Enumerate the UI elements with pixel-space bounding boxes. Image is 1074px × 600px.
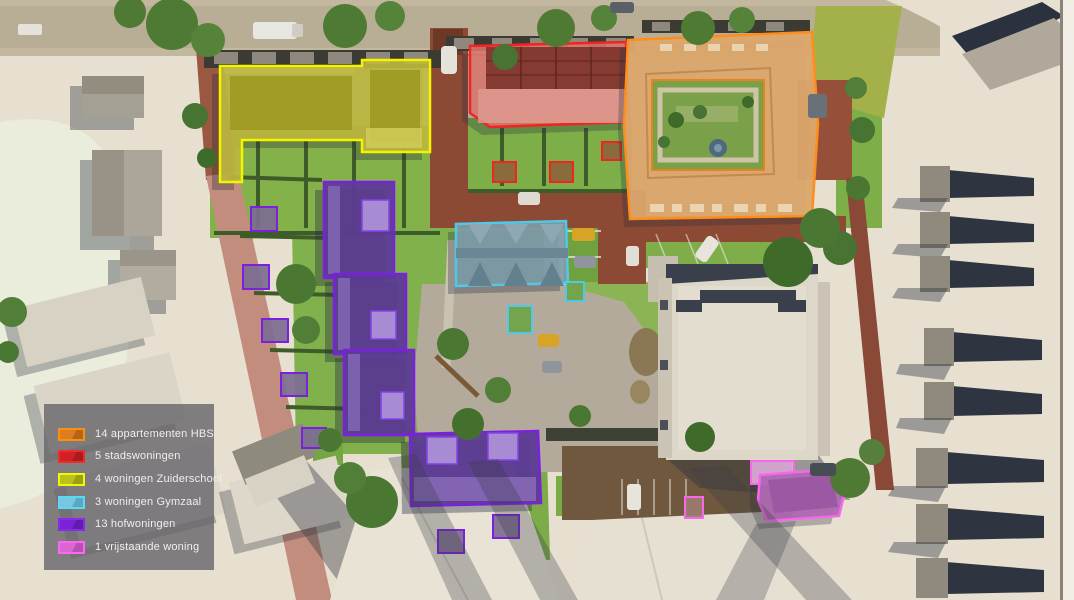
legend-swatch-2 xyxy=(58,450,85,463)
legend-rows: 14 appartementen HBS5 stadswoningen4 won… xyxy=(58,423,214,559)
context-building xyxy=(920,166,950,202)
right-margin xyxy=(1063,0,1074,600)
tree xyxy=(182,103,208,129)
legend-panel: 14 appartementen HBS5 stadswoningen4 won… xyxy=(44,404,214,570)
window xyxy=(660,300,668,310)
rooftop xyxy=(652,22,670,31)
roof-bar xyxy=(778,300,806,312)
courtyard-pergola xyxy=(676,106,738,122)
vrijstaande-roof xyxy=(768,475,838,513)
tree xyxy=(276,264,316,304)
context-building xyxy=(920,256,950,292)
tree xyxy=(693,105,707,119)
context-building xyxy=(916,448,948,488)
facade-detail xyxy=(660,44,672,51)
vehicle-car xyxy=(627,484,641,510)
tree xyxy=(569,405,591,427)
rooftop xyxy=(290,52,314,64)
gymzaal-garden xyxy=(508,306,532,333)
context-building xyxy=(920,212,950,248)
legend-item-label: 4 woningen Zuiderschool xyxy=(95,473,222,486)
hofwoningen-shed xyxy=(262,319,288,342)
hofwoningen-strip xyxy=(348,354,360,431)
hofwoningen-dormer xyxy=(371,311,396,339)
tree xyxy=(846,176,870,200)
vehicle-car xyxy=(538,334,559,347)
tree xyxy=(681,11,715,45)
rooftop xyxy=(328,52,352,64)
vrijstaande-shed xyxy=(685,497,703,518)
legend-item: 1 vrijstaande woning xyxy=(58,536,214,559)
legend-item: 14 appartementen HBS xyxy=(58,423,214,446)
tree xyxy=(830,458,870,498)
tree xyxy=(859,439,885,465)
legend-swatch-3 xyxy=(58,473,85,486)
window xyxy=(660,360,668,370)
courtyard-pool-center xyxy=(714,144,722,152)
vehicle-car xyxy=(542,361,562,373)
vehicle-car xyxy=(610,2,634,13)
vehicle-van xyxy=(18,24,42,35)
stadswoningen-shed xyxy=(602,142,621,160)
roof-bar xyxy=(676,300,702,312)
courtyard-hbs xyxy=(652,80,764,170)
legend-item-label: 14 appartementen HBS xyxy=(95,428,214,441)
existing-building-wing xyxy=(818,282,830,456)
context-roof xyxy=(120,250,176,266)
tree xyxy=(800,208,840,248)
zuiderschool-porch xyxy=(366,128,422,148)
legend-swatch-6 xyxy=(58,541,85,554)
facade-detail xyxy=(712,204,722,212)
tree xyxy=(292,316,320,344)
hofwoningen-dormer xyxy=(381,392,404,419)
site-plan-render: 14 appartementen HBS5 stadswoningen4 won… xyxy=(0,0,1074,600)
tree xyxy=(849,117,875,143)
tree xyxy=(318,428,342,452)
tree xyxy=(668,112,684,128)
tree xyxy=(323,4,367,48)
facade-detail xyxy=(734,204,748,212)
facade-detail xyxy=(778,204,792,212)
vehicle-car xyxy=(810,463,836,476)
legend-item-label: 1 vrijstaande woning xyxy=(95,541,199,554)
hofwoningen-strip xyxy=(338,278,350,350)
hofwoningen-shed xyxy=(243,265,269,289)
context-roof xyxy=(82,76,144,94)
context-building xyxy=(916,504,948,544)
hofwoningen-dormer xyxy=(362,200,389,231)
tree xyxy=(658,136,670,148)
tree xyxy=(191,23,225,57)
hofwoningen-shed xyxy=(281,373,307,396)
gymzaal-garden xyxy=(566,282,584,301)
tree xyxy=(437,328,469,360)
tree xyxy=(197,148,217,168)
flowerbed xyxy=(630,380,650,404)
rooftop xyxy=(766,22,784,31)
facade-detail xyxy=(672,204,682,212)
context-building xyxy=(916,558,948,598)
stadswoningen-facade xyxy=(478,89,628,123)
facade-detail xyxy=(690,204,704,212)
vehicle-truck xyxy=(253,22,297,39)
legend-item-label: 3 woningen Gymzaal xyxy=(95,496,201,509)
zuiderschool-roof xyxy=(230,76,352,130)
legend-swatch-5 xyxy=(58,518,85,531)
legend-item: 13 hofwoningen xyxy=(58,513,214,536)
tree xyxy=(742,96,754,108)
vehicle-car xyxy=(441,46,457,74)
tree xyxy=(334,462,366,494)
flowerbed xyxy=(629,328,663,376)
legend-swatch-4 xyxy=(58,496,85,509)
vehicle-car xyxy=(808,94,827,118)
gymzaal-ridge xyxy=(456,248,568,258)
vehicle-car xyxy=(574,256,596,268)
tree xyxy=(146,0,198,50)
rooftop xyxy=(252,52,276,64)
legend-item-label: 13 hofwoningen xyxy=(95,518,175,531)
tree xyxy=(485,377,511,403)
facade-detail xyxy=(756,44,768,51)
tree xyxy=(537,9,575,47)
facade-detail xyxy=(732,44,744,51)
tree xyxy=(729,7,755,33)
hofwoningen-shed xyxy=(251,207,277,231)
context-building xyxy=(924,382,954,420)
legend-item-label: 5 stadswoningen xyxy=(95,450,181,463)
hofwoningen-dormer xyxy=(427,437,457,464)
vehicle-car xyxy=(626,246,639,266)
vehicle-truck-cab xyxy=(292,24,303,37)
tree xyxy=(375,1,405,31)
vehicle-car xyxy=(572,228,595,241)
tree xyxy=(492,44,518,70)
context-building xyxy=(924,328,954,366)
hofwoningen-dormer xyxy=(488,433,518,460)
hofwoningen-strip xyxy=(328,186,340,274)
tree xyxy=(685,422,715,452)
legend-item: 4 woningen Zuiderschool xyxy=(58,468,214,491)
window xyxy=(660,420,668,430)
facade-detail xyxy=(650,204,664,212)
site-border xyxy=(1060,0,1063,600)
tree xyxy=(763,237,813,287)
legend-item: 5 stadswoningen xyxy=(58,446,214,469)
context-roof xyxy=(92,150,124,236)
stadswoningen-shed xyxy=(493,162,516,182)
tree xyxy=(452,408,484,440)
facade-detail xyxy=(684,44,696,51)
legend-swatch-1 xyxy=(58,428,85,441)
facade-detail xyxy=(756,204,766,212)
facade-detail xyxy=(708,44,720,51)
tree xyxy=(845,77,867,99)
stadswoningen-shed xyxy=(550,162,573,182)
vehicle-car xyxy=(518,192,540,205)
legend-item: 3 woningen Gymzaal xyxy=(58,491,214,514)
